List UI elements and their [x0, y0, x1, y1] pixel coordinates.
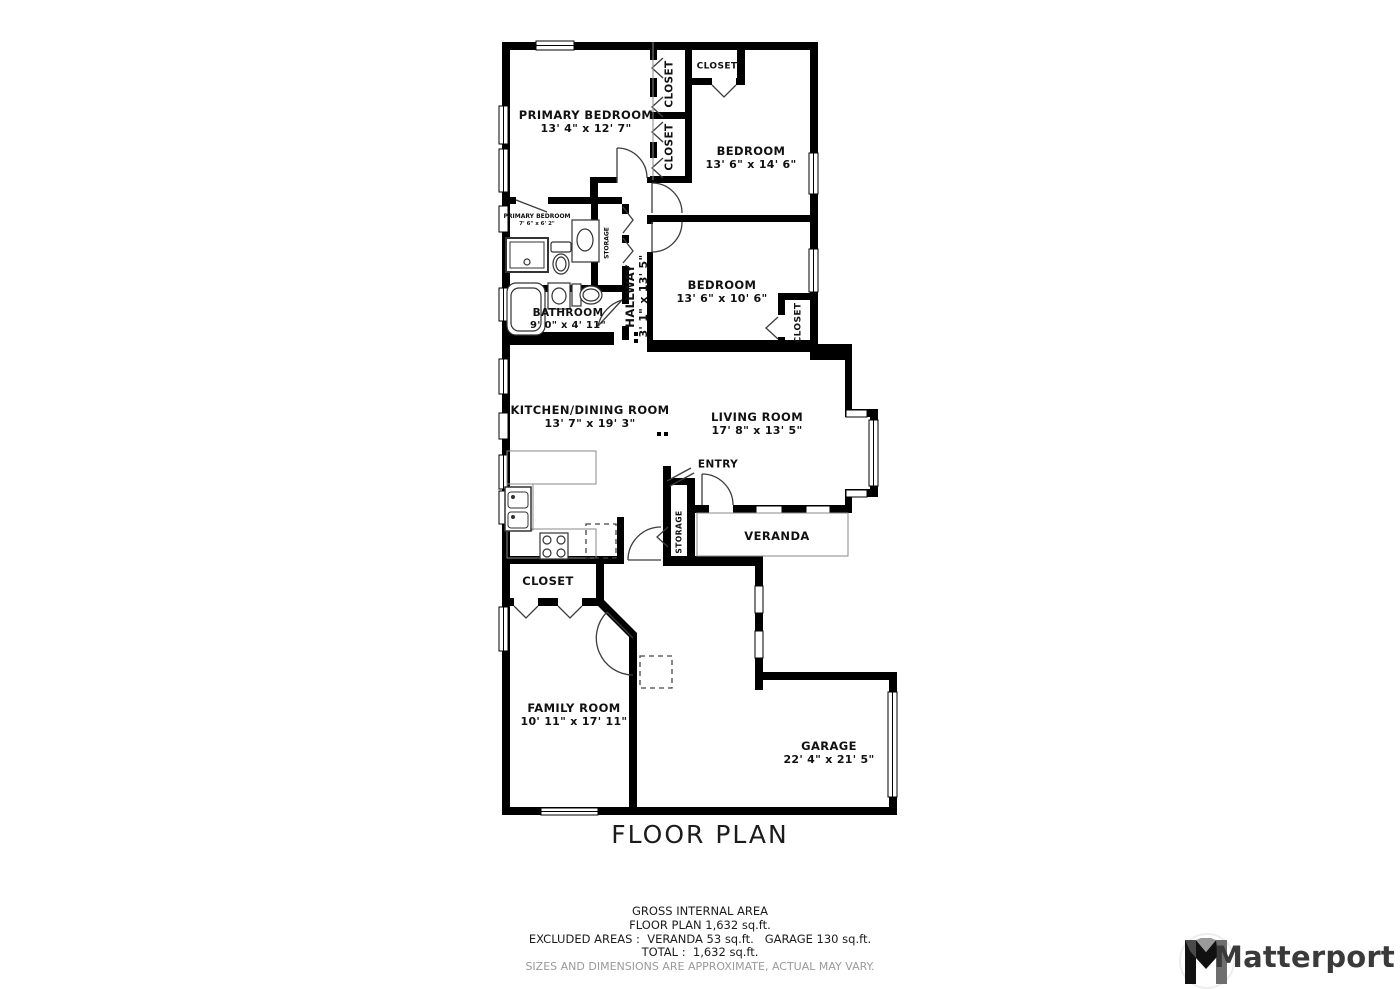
- room-dims: 13' 4" x 12' 7": [519, 122, 653, 136]
- room-label-hallway: HALLWAY 3' 1" x 13' 5": [623, 254, 651, 337]
- floor-plan-page: PRIMARY BEDROOM 13' 4" x 12' 7" BEDROOM …: [0, 0, 1400, 989]
- room-label-kitchen-dining: KITCHEN/DINING ROOM 13' 7" x 19' 3": [510, 403, 669, 431]
- room-label-primary-bathroom: PRIMARY BEDROOM 7' 6" x 6' 2": [503, 213, 570, 227]
- room-label-family-room: FAMILY ROOM 10' 11" x 17' 11": [521, 701, 628, 729]
- area-summary: GROSS INTERNAL AREA FLOOR PLAN 1,632 sq.…: [250, 905, 1150, 974]
- room-label-bedroom-mid: BEDROOM 13' 6" x 10' 6": [676, 278, 767, 306]
- matterport-m-icon-space: [1180, 930, 1206, 984]
- room-name: PRIMARY BEDROOM: [519, 108, 653, 122]
- gross-internal-area-label: GROSS INTERNAL AREA: [250, 905, 1150, 919]
- floor-plan-area: FLOOR PLAN 1,632 sq.ft.: [250, 919, 1150, 933]
- room-label-living-room: LIVING ROOM 17' 8" x 13' 5": [711, 410, 803, 438]
- room-label-bedroom-top: BEDROOM 13' 6" x 14' 6": [705, 144, 796, 172]
- room-label-garage: GARAGE 22' 4" x 21' 5": [783, 739, 874, 767]
- room-label-veranda: VERANDA: [744, 529, 809, 543]
- excluded-areas: EXCLUDED AREAS : VERANDA 53 sq.ft. GARAG…: [250, 933, 1150, 947]
- room-label-bathroom: BATHROOM 9' 0" x 4' 11": [530, 307, 606, 333]
- page-title: FLOOR PLAN: [350, 820, 1050, 849]
- total-area: TOTAL : 1,632 sq.ft.: [250, 946, 1150, 960]
- room-label-closet-primary-1: CLOSET: [663, 60, 676, 107]
- room-label-closet-bedroom-mid: CLOSET: [793, 303, 804, 344]
- room-label-storage-entry: STORAGE: [674, 510, 683, 553]
- room-label-storage-hallway: STORAGE: [603, 227, 611, 259]
- room-label-primary-bedroom: PRIMARY BEDROOM 13' 4" x 12' 7": [519, 108, 653, 136]
- room-label-closet-family: CLOSET: [522, 574, 574, 588]
- room-label-entry: ENTRY: [698, 458, 738, 471]
- room-label-closet-bedroom-top: CLOSET: [697, 61, 738, 72]
- matterport-logo: Matterport: [1180, 928, 1395, 986]
- room-label-closet-primary-2: CLOSET: [663, 123, 676, 170]
- brand-wordmark: Matterport: [1214, 940, 1395, 974]
- disclaimer-text: SIZES AND DIMENSIONS ARE APPROXIMATE, AC…: [250, 960, 1150, 974]
